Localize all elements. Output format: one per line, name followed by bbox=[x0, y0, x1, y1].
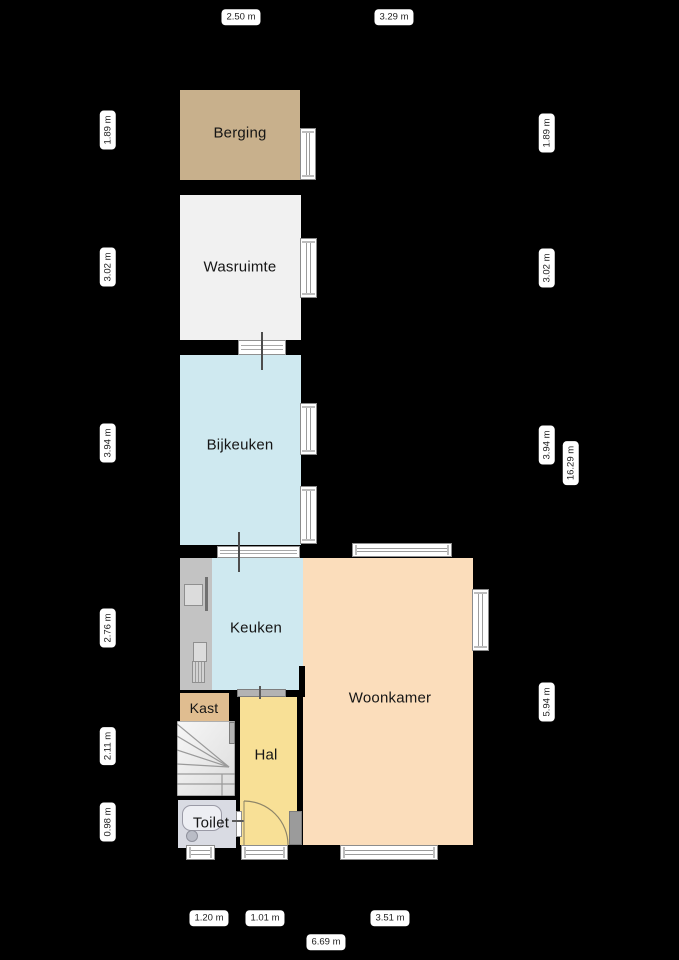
label-woonkamer: Woonkamer bbox=[349, 690, 431, 707]
dim-right-594: 5.94 m bbox=[539, 682, 555, 721]
window-woonkamer-right bbox=[472, 589, 489, 651]
dim-top-329: 3.29 m bbox=[374, 9, 413, 25]
dim-bottom-120: 1.20 m bbox=[189, 910, 228, 926]
dim-right-1629: 16.29 m bbox=[563, 441, 579, 485]
label-berging: Berging bbox=[213, 125, 266, 142]
window-toilet bbox=[186, 845, 215, 860]
label-bijkeuken: Bijkeuken bbox=[207, 437, 274, 454]
front-door-threshold bbox=[241, 845, 288, 860]
label-kast: Kast bbox=[190, 700, 219, 716]
dim-right-302: 3.02 m bbox=[539, 248, 555, 287]
window-wasruimte bbox=[300, 238, 317, 298]
door-leaf-bijkeuken bbox=[238, 532, 240, 572]
window-bijkeuken-2 bbox=[300, 486, 317, 544]
dim-right-189: 1.89 m bbox=[539, 113, 555, 152]
kitchen-radiator bbox=[192, 661, 205, 683]
door-bijkeuken-keuken bbox=[217, 546, 300, 558]
toilet-bowl bbox=[186, 830, 198, 842]
door-leaf-wasruimte bbox=[261, 332, 263, 370]
dim-left-276: 2.76 m bbox=[100, 608, 116, 647]
dim-bottom-351: 3.51 m bbox=[370, 910, 409, 926]
dim-left-394: 3.94 m bbox=[100, 423, 116, 462]
stairs bbox=[177, 721, 235, 796]
window-bijkeuken-1 bbox=[300, 403, 317, 455]
door-tick-keuken-hal bbox=[259, 686, 261, 699]
dim-left-211: 2.11 m bbox=[100, 727, 116, 765]
label-wasruimte: Wasruimte bbox=[204, 259, 277, 276]
label-keuken: Keuken bbox=[230, 620, 282, 637]
kitchen-sink bbox=[184, 584, 203, 606]
dim-right-394: 3.94 m bbox=[539, 425, 555, 464]
window-woonkamer-top bbox=[352, 543, 452, 557]
wall-keuken-woonkamer bbox=[299, 666, 305, 697]
floor-plan: Berging Wasruimte Bijkeuken Keuken Woonk… bbox=[0, 0, 679, 960]
dim-left-302: 3.02 m bbox=[100, 247, 116, 286]
label-hal: Hal bbox=[254, 747, 277, 764]
window-woonkamer-bottom bbox=[340, 845, 438, 860]
label-toilet: Toilet bbox=[193, 815, 229, 832]
kast-door bbox=[229, 722, 235, 744]
dim-bottom-101: 1.01 m bbox=[245, 910, 284, 926]
dim-left-098: 0.98 m bbox=[100, 802, 116, 841]
kitchen-appliance bbox=[193, 642, 207, 662]
counter-edge bbox=[205, 577, 208, 611]
dim-bottom-669: 6.69 m bbox=[306, 934, 345, 950]
door-keuken-hal bbox=[237, 689, 286, 697]
window-berging bbox=[300, 128, 316, 180]
dim-left-189: 1.89 m bbox=[100, 110, 116, 149]
dim-top-250: 2.50 m bbox=[221, 9, 260, 25]
front-door-swing bbox=[241, 800, 291, 847]
